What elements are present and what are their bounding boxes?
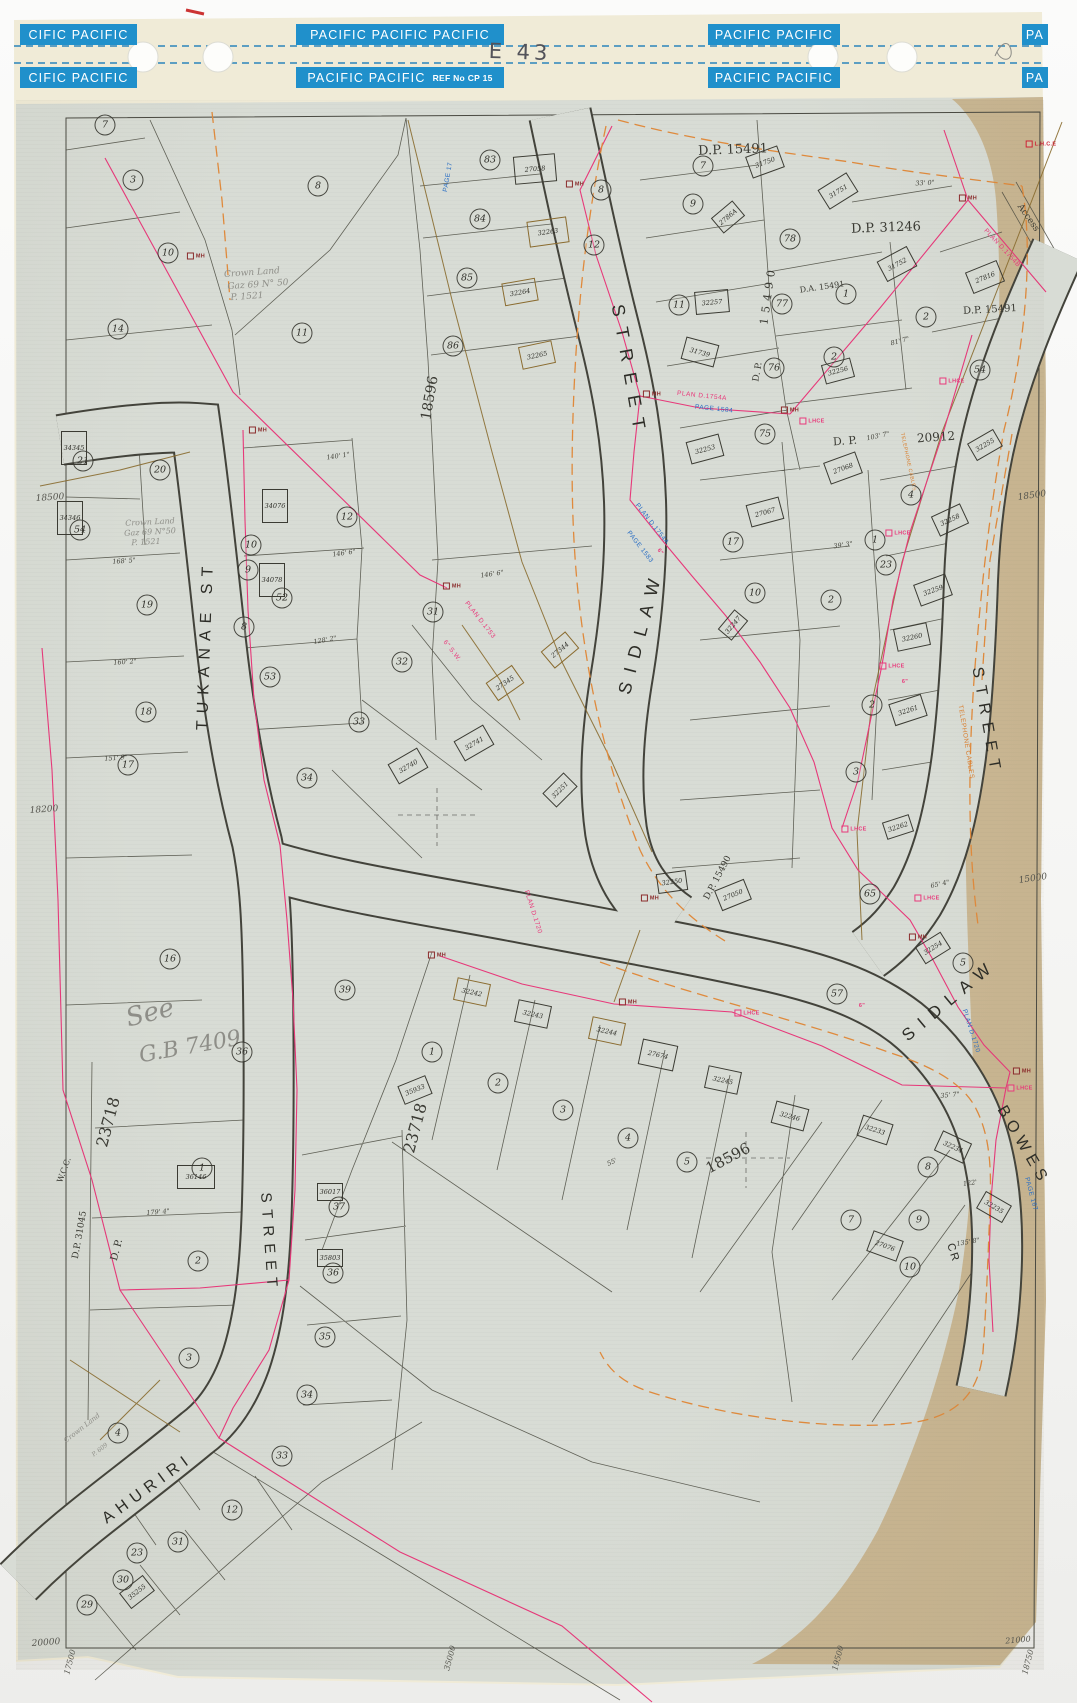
survey-mark-icon	[428, 952, 435, 959]
lot-number: 3	[846, 762, 867, 783]
survey-mark: 6"	[859, 1003, 865, 1009]
lot-number: 77	[772, 294, 793, 315]
lot-number: 4	[618, 1128, 639, 1149]
lot-number: 3	[123, 170, 144, 191]
survey-mark-label: MH	[258, 427, 267, 433]
building-outline: 27076	[866, 1230, 904, 1262]
lot-number: 34	[297, 768, 318, 789]
street-label: STREET	[967, 666, 1004, 779]
survey-mark: LHCE	[734, 1010, 759, 1017]
survey-mark-icon	[619, 999, 626, 1006]
plan-reference: D. P.	[109, 1238, 125, 1262]
lot-number: 10	[158, 243, 179, 264]
lot-number: 11	[669, 295, 690, 316]
lot-number: 2	[916, 307, 937, 328]
survey-mark: LHCE	[939, 378, 964, 385]
survey-mark: MH	[428, 952, 446, 959]
building-outline: 36146	[177, 1165, 215, 1189]
survey-mark-icon	[566, 181, 573, 188]
dimension-label: 140' 1"	[326, 450, 350, 461]
lot-number: 10	[241, 535, 262, 556]
survey-mark-label: LHCE	[948, 378, 964, 384]
lot-number: 3	[553, 1100, 574, 1121]
building-outline: 32253	[686, 433, 725, 464]
dimension-label: 122'	[962, 1178, 977, 1188]
building-outline: 32233	[856, 1115, 893, 1146]
building-outline: 27067	[746, 496, 785, 527]
small-reference: PLAN D.1720	[961, 1008, 982, 1053]
lot-number: 75	[755, 424, 776, 445]
survey-mark: MH	[781, 407, 799, 414]
lot-number: 17	[118, 755, 139, 776]
lot-number: 1	[836, 284, 857, 305]
building-outline: 27816	[965, 260, 1005, 294]
survey-mark-icon	[734, 1010, 741, 1017]
survey-mark: LHCE	[879, 663, 904, 670]
lot-number: 23	[127, 1543, 148, 1564]
lot-number: 54	[970, 360, 991, 381]
lot-number: 33	[349, 712, 370, 733]
building-outline: 35803	[317, 1249, 343, 1267]
survey-mark-icon	[781, 407, 788, 414]
lot-number: 2	[862, 695, 883, 716]
survey-mark-icon	[914, 895, 921, 902]
plan-reference: Access	[1015, 202, 1041, 233]
survey-mark-label: MH	[918, 934, 927, 940]
survey-mark-icon	[643, 391, 650, 398]
building-outline: 32247	[718, 609, 749, 640]
small-reference: PLAN D.1753	[463, 600, 496, 640]
plan-reference: D.P. 31246	[851, 219, 921, 236]
dimension-label: 33' 0"	[915, 179, 935, 188]
margin-coordinate: 18200	[29, 804, 58, 816]
lot-number: 23	[876, 555, 897, 576]
scanned-survey-map: CIFIC PACIFIC PACIFIC PACIFIC PACIFIC PA…	[0, 0, 1077, 1703]
survey-mark: L.H.C.E	[1026, 141, 1057, 148]
plan-reference: D.P. 31045	[71, 1210, 89, 1259]
margin-coordinate: 15000	[1018, 872, 1048, 886]
survey-mark-label: LHCE	[743, 1010, 759, 1016]
pacific-strip: PACIFIC PACIFIC PACIFIC	[296, 24, 504, 45]
pencil-note: Gaz 69 N°50	[124, 526, 176, 538]
margin-coordinate: 21000	[1005, 1634, 1031, 1645]
building-outline: 36017	[317, 1183, 343, 1201]
lot-number: 18	[136, 702, 157, 723]
street-label: STREET	[607, 303, 651, 442]
survey-mark-label: MH	[790, 407, 799, 413]
survey-mark: MH	[909, 934, 927, 941]
pacific-strip-label: PACIFIC PACIFIC	[307, 71, 425, 85]
survey-mark-label: LHCE	[888, 663, 904, 669]
building-outline: 31751	[817, 172, 858, 210]
building-outline: 35933	[397, 1075, 432, 1105]
ref-number-label: REF No CP 15	[433, 73, 493, 83]
building-outline: 32265	[518, 340, 556, 370]
small-reference: PAGE 17	[442, 162, 454, 193]
pacific-strip: PA	[1022, 24, 1048, 45]
margin-coordinate: 35000	[442, 1645, 457, 1672]
pencil-note: G.B 7409	[137, 1026, 243, 1068]
lot-number: 9	[238, 560, 259, 581]
survey-mark: MH	[641, 895, 659, 902]
survey-mark-label: MH	[437, 952, 446, 958]
lot-number: 85	[457, 268, 478, 289]
building-outline: 32243	[514, 999, 552, 1029]
plan-reference: 18596	[418, 375, 441, 422]
survey-mark-label: MH	[196, 253, 205, 259]
lot-number: 7	[95, 115, 116, 136]
pencil-note: Crown Land	[224, 266, 280, 280]
lot-number: 16	[160, 949, 181, 970]
small-reference: PLAN D.1754A	[634, 502, 670, 546]
survey-mark-icon	[841, 826, 848, 833]
building-outline: 32235	[976, 1191, 1012, 1223]
survey-mark: LHCE	[799, 418, 824, 425]
dimension-label: 179' 4"	[146, 1207, 170, 1217]
survey-mark-label: MH	[1022, 1068, 1031, 1074]
lot-number: 9	[683, 194, 704, 215]
street-label: TUKANAE ST	[194, 560, 218, 731]
plan-reference: 23718	[399, 1101, 431, 1155]
building-outline: 31739	[681, 336, 720, 367]
lot-number: 5	[953, 953, 974, 974]
lot-number: 3	[179, 1348, 200, 1369]
dimension-label: 135' 8"	[956, 1236, 980, 1248]
small-reference: TELEPHONE CABLES	[957, 704, 976, 779]
dimension-label: 103' 7"	[866, 430, 891, 443]
lot-number: 12	[222, 1500, 243, 1521]
survey-mark: 6"	[656, 548, 665, 557]
pencil-note: Crown Land	[62, 1411, 101, 1444]
dimension-label: 146' 6"	[480, 568, 504, 579]
building-outline: 27674	[638, 1039, 679, 1072]
lot-number: 83	[480, 150, 501, 171]
plan-reference: D. P.	[751, 361, 764, 382]
survey-mark: MH	[619, 999, 637, 1006]
building-outline: 32250	[656, 870, 688, 894]
survey-mark-label: MH	[575, 181, 584, 187]
pencil-note: P. 609	[91, 1442, 110, 1459]
survey-mark-label: LHCE	[923, 895, 939, 901]
building-outline: 27068	[823, 451, 863, 484]
dimension-label: 168' 5"	[112, 556, 136, 566]
survey-mark-label: MH	[628, 999, 637, 1005]
lot-number: 11	[292, 323, 313, 344]
survey-mark: LHCE	[1007, 1085, 1032, 1092]
building-outline: 32257	[694, 289, 730, 315]
lot-number: 29	[77, 1595, 98, 1616]
building-outline: 32262	[882, 814, 914, 840]
lot-number: 2	[821, 590, 842, 611]
survey-mark: MH	[959, 195, 977, 202]
margin-coordinate: 20000	[31, 1637, 60, 1649]
building-outline: 32261	[888, 694, 927, 726]
building-outline: 27344	[541, 631, 580, 668]
survey-mark-icon	[1026, 141, 1033, 148]
lot-number: 8	[591, 180, 612, 201]
lot-number: 8	[918, 1157, 939, 1178]
lot-number: 20	[150, 460, 171, 481]
lot-number: 33	[272, 1446, 293, 1467]
lot-number: 36	[232, 1042, 253, 1063]
lot-number: 65	[860, 884, 881, 905]
lot-number: 7	[693, 156, 714, 177]
lot-number: 19	[137, 595, 158, 616]
building-outline: 32251	[542, 772, 577, 807]
lot-number: 32	[392, 652, 413, 673]
lot-number: 8	[234, 617, 255, 638]
survey-mark-label: 6"	[656, 548, 665, 557]
lot-number: 12	[337, 507, 358, 528]
street-label: BOWES	[993, 1103, 1053, 1190]
dimension-label: 35' 7"	[940, 1090, 960, 1100]
building-outline: 31752	[877, 246, 918, 282]
lot-number: 14	[108, 319, 129, 340]
lot-number: 1	[865, 530, 886, 551]
pacific-strip: PACIFIC PACIFIC	[708, 67, 840, 88]
building-outline: 32260	[893, 622, 931, 652]
plan-reference: 18596	[703, 1139, 754, 1177]
building-outline: 34346	[57, 501, 83, 535]
survey-mark-icon	[443, 583, 450, 590]
survey-mark-label: MH	[968, 195, 977, 201]
building-outline: 32255	[967, 429, 1003, 461]
lot-number: 78	[780, 229, 801, 250]
building-outline: 27058	[513, 153, 557, 185]
survey-mark-icon	[1007, 1085, 1014, 1092]
survey-mark: MH	[443, 583, 461, 590]
street-label: STREET	[257, 1192, 281, 1294]
building-outline: 32263	[526, 216, 569, 247]
building-outline: 34345	[61, 431, 87, 465]
survey-mark-label: 6"	[859, 1003, 865, 1009]
building-outline: 32740	[388, 748, 429, 785]
pacific-strip: CIFIC PACIFIC	[20, 67, 137, 88]
lot-number: 8	[308, 176, 329, 197]
small-reference: TELEPHONE CABLES	[899, 432, 917, 491]
lot-number: 31	[423, 602, 444, 623]
pacific-strip: CIFIC PACIFIC	[20, 24, 137, 45]
survey-mark: MH	[566, 181, 584, 188]
lot-number: 10	[900, 1257, 921, 1278]
pencil-note: P. 1521	[230, 291, 263, 303]
building-outline: 27345	[486, 665, 525, 701]
dimension-label: 146' 6"	[332, 547, 356, 558]
lot-number: 12	[584, 235, 605, 256]
lot-number: 76	[764, 358, 785, 379]
lot-number: 5	[677, 1152, 698, 1173]
building-outline: 32246	[771, 1100, 810, 1131]
survey-mark-label: L.H.C.E	[1035, 141, 1057, 147]
street-label: SIDLAW	[614, 567, 668, 696]
small-reference: 6" S.W.	[442, 639, 463, 663]
lot-number: 86	[443, 336, 464, 357]
margin-coordinate: 18750	[1020, 1649, 1035, 1676]
survey-mark-icon	[249, 427, 256, 434]
dimension-label: 160' 2"	[113, 657, 137, 667]
lot-number: 2	[488, 1073, 509, 1094]
survey-mark: LHCE	[914, 895, 939, 902]
pencil-note: See	[123, 993, 177, 1034]
lot-number: 84	[470, 209, 491, 230]
survey-mark-label: LHCE	[850, 826, 866, 832]
lot-number: 34	[297, 1385, 318, 1406]
survey-mark: 6"	[902, 679, 908, 685]
survey-mark-label: LHCE	[808, 418, 824, 424]
small-reference: PLAN D.1754A	[677, 390, 728, 402]
small-reference: PAGE 1584	[695, 404, 734, 415]
plan-reference: D.P. 15491	[963, 303, 1017, 317]
survey-mark: LHCE	[841, 826, 866, 833]
margin-coordinate: 18500	[1017, 489, 1047, 503]
lot-number: 4	[108, 1423, 129, 1444]
survey-mark: MH	[1013, 1068, 1031, 1075]
survey-mark: MH	[187, 253, 205, 260]
dimension-label: 65' 4"	[930, 878, 950, 890]
building-outline: 34076	[262, 489, 288, 523]
survey-mark: MH	[643, 391, 661, 398]
lot-number: 9	[909, 1210, 930, 1231]
small-reference: PLAN D.1720	[523, 889, 544, 934]
survey-mark-label: 6"	[902, 679, 908, 685]
pencil-note: Gaz 69 N° 50	[227, 278, 289, 292]
pencil-note: P. 1521	[131, 537, 161, 548]
lot-number: 10	[745, 583, 766, 604]
lot-number: 35	[315, 1327, 336, 1348]
survey-mark-label: MH	[652, 391, 661, 397]
small-reference: PAGE 1583	[625, 530, 654, 565]
survey-mark-icon	[959, 195, 966, 202]
survey-mark-label: LHCE	[1016, 1085, 1032, 1091]
survey-mark-icon	[187, 253, 194, 260]
lot-number: 4	[901, 485, 922, 506]
survey-mark-label: MH	[452, 583, 461, 589]
survey-mark-icon	[885, 530, 892, 537]
plan-reference: 20912	[916, 429, 955, 446]
lot-number: 31	[168, 1532, 189, 1553]
survey-mark: LHCE	[885, 530, 910, 537]
lot-number: 57	[827, 984, 848, 1005]
dimension-label: 128' 2"	[313, 634, 337, 646]
lot-number: 17	[723, 532, 744, 553]
survey-mark-icon	[799, 418, 806, 425]
margin-coordinate: 17500	[62, 1649, 77, 1676]
dimension-label: 81' 7"	[890, 335, 911, 348]
lot-number: 53	[260, 667, 281, 688]
survey-mark: MH	[249, 427, 267, 434]
building-outline: 2786A	[711, 200, 745, 233]
building-outline: 32245	[704, 1065, 742, 1095]
survey-mark-label: MH	[650, 895, 659, 901]
building-outline: 32259	[913, 573, 953, 606]
survey-mark-label: LHCE	[894, 530, 910, 536]
building-outline: 32258	[931, 503, 969, 536]
pacific-strip: PA	[1022, 67, 1048, 88]
lot-number: 1	[422, 1042, 443, 1063]
plan-reference: 23718	[92, 1095, 124, 1149]
margin-coordinate: 19500	[830, 1645, 845, 1672]
lot-number: 39	[335, 980, 356, 1001]
survey-mark-icon	[1013, 1068, 1020, 1075]
building-outline: 32234	[934, 1130, 972, 1163]
sheet-code: E 43	[488, 39, 551, 65]
pacific-ref-strip: PACIFIC PACIFIC REF No CP 15	[296, 67, 504, 88]
survey-mark-icon	[939, 378, 946, 385]
building-outline: 32264	[501, 278, 538, 307]
building-outline: 32242	[453, 977, 491, 1007]
building-outline: 34078	[259, 563, 285, 597]
survey-mark-icon	[641, 895, 648, 902]
dimension-label: 39' 3"	[833, 540, 853, 551]
survey-mark-icon	[879, 663, 886, 670]
street-label: AHURIRI	[99, 1450, 197, 1528]
building-outline: 32244	[588, 1016, 626, 1046]
pacific-strip: PACIFIC PACIFIC	[708, 24, 840, 45]
plan-reference: D. P.	[833, 434, 858, 449]
building-outline: 32741	[454, 725, 495, 762]
lot-number: 7	[841, 1210, 862, 1231]
street-label: SIDLAW	[898, 954, 1002, 1046]
lot-number: 2	[188, 1251, 209, 1272]
dimension-label: 55'	[606, 1156, 619, 1168]
plan-reference: W.C.C.	[55, 1156, 72, 1184]
survey-mark-icon	[909, 934, 916, 941]
